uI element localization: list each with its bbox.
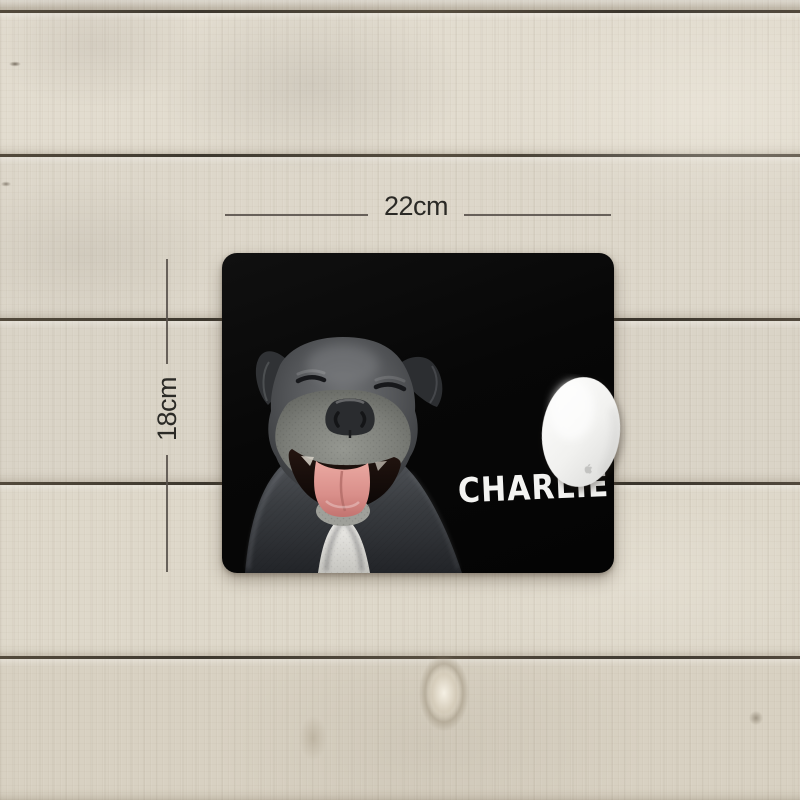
dog-nose xyxy=(325,399,374,439)
computer-mouse xyxy=(534,371,627,493)
height-dimension-line-top xyxy=(166,259,168,364)
plank-seam xyxy=(0,154,800,157)
computer-mouse-graphic xyxy=(534,371,627,493)
wood-plank xyxy=(0,13,800,154)
width-dimension-line-left xyxy=(225,214,368,216)
plank-seam xyxy=(0,656,800,659)
plank-seam xyxy=(0,10,800,13)
wood-plank xyxy=(0,659,800,800)
wood-plank xyxy=(0,0,800,10)
height-dimension-label: 18cm xyxy=(122,363,212,455)
width-dimension-line-right xyxy=(464,214,611,216)
mousepad: CHARLIE xyxy=(222,253,614,573)
height-dimension-line-bottom xyxy=(166,455,168,572)
width-dimension-label: 22cm xyxy=(366,191,466,221)
